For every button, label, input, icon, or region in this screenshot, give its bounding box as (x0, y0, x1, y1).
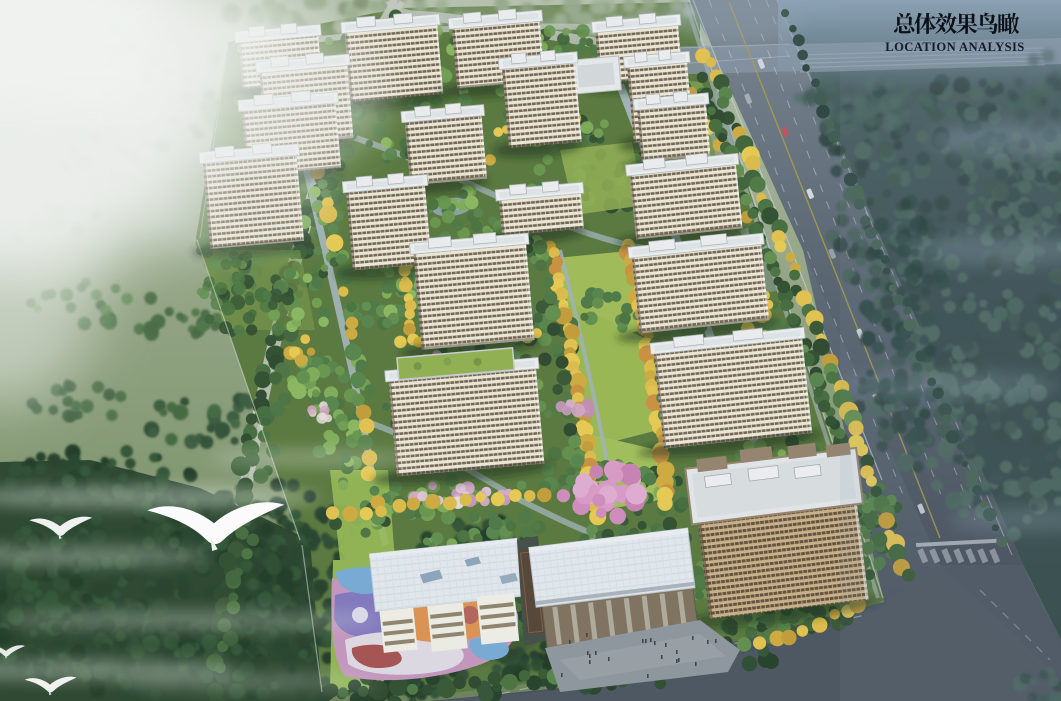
svg-text:LOCATION ANALYSIS: LOCATION ANALYSIS (885, 40, 1024, 54)
